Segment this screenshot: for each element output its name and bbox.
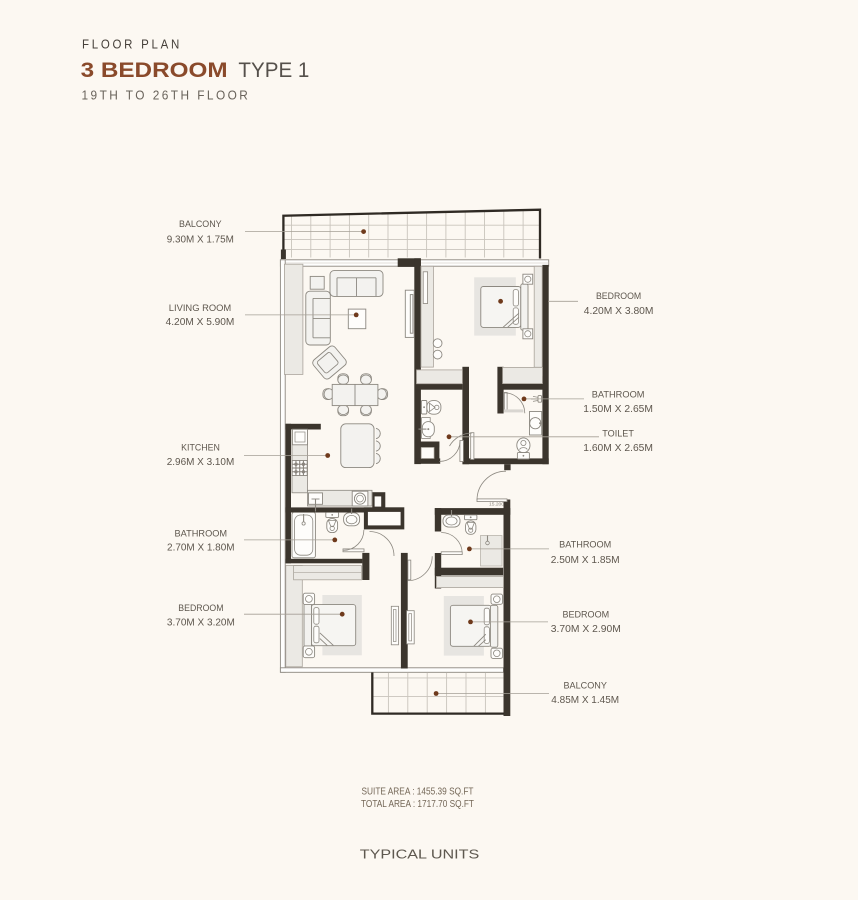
svg-text:15.200: 15.200 [489, 502, 505, 507]
svg-text:BEDROOM: BEDROOM [596, 291, 641, 301]
svg-text:4.20M X 5.90M: 4.20M X 5.90M [166, 317, 235, 328]
svg-text:2.96M X 3.10M: 2.96M X 3.10M [167, 457, 235, 468]
svg-text:SUITE AREA : 1455.39 SQ.FT: SUITE AREA : 1455.39 SQ.FT [362, 786, 475, 797]
svg-text:1.60M X 2.65M: 1.60M X 2.65M [583, 443, 653, 454]
svg-text:19TH TO 26TH FLOOR: 19TH TO 26TH FLOOR [82, 89, 251, 103]
svg-text:KITCHEN: KITCHEN [181, 442, 220, 452]
svg-text:BATHROOM: BATHROOM [175, 529, 228, 539]
svg-text:9.30M X 1.75M: 9.30M X 1.75M [167, 235, 234, 246]
svg-text:BEDROOM: BEDROOM [562, 610, 609, 620]
svg-text:LIVING ROOM: LIVING ROOM [169, 303, 232, 313]
svg-text:TYPE 1: TYPE 1 [238, 58, 309, 82]
svg-text:TYPICAL UNITS: TYPICAL UNITS [360, 846, 480, 861]
svg-text:FLOOR PLAN: FLOOR PLAN [82, 38, 182, 52]
svg-text:BEDROOM: BEDROOM [178, 603, 223, 613]
svg-text:TOTAL AREA : 1717.70 SQ.FT: TOTAL AREA : 1717.70 SQ.FT [361, 799, 475, 810]
svg-text:3 BEDROOM: 3 BEDROOM [81, 58, 228, 82]
svg-text:BALCONY: BALCONY [179, 219, 222, 229]
svg-text:2.70M X 1.80M: 2.70M X 1.80M [167, 543, 235, 554]
svg-text:BALCONY: BALCONY [564, 681, 607, 691]
svg-text:4.20M X 3.80M: 4.20M X 3.80M [584, 306, 654, 317]
svg-text:TOILET: TOILET [602, 428, 634, 438]
svg-text:3.70M X 3.20M: 3.70M X 3.20M [167, 618, 235, 629]
svg-text:2.50M X 1.85M: 2.50M X 1.85M [551, 555, 620, 566]
svg-text:4.85M X 1.45M: 4.85M X 1.45M [551, 695, 619, 706]
svg-text:1.50M X 2.65M: 1.50M X 2.65M [583, 404, 653, 415]
svg-text:BATHROOM: BATHROOM [592, 389, 645, 399]
svg-text:3.70M X 2.90M: 3.70M X 2.90M [551, 624, 621, 635]
svg-text:BATHROOM: BATHROOM [559, 540, 611, 550]
